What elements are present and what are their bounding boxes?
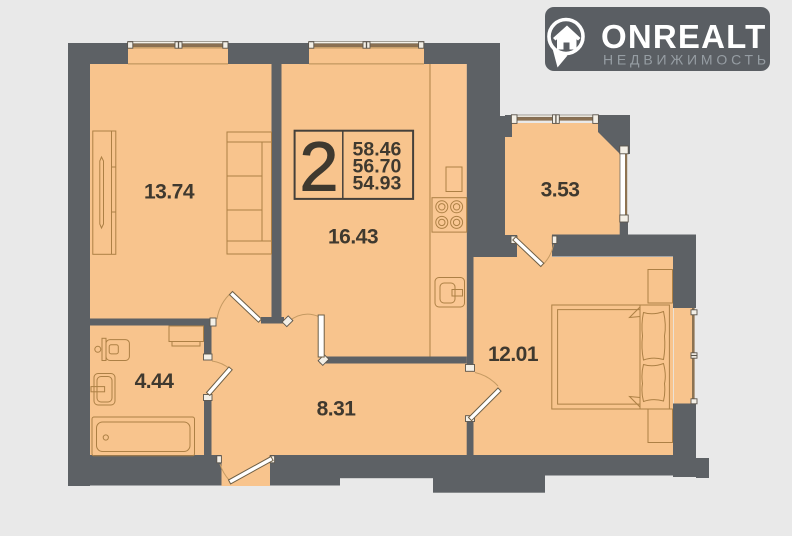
svg-text:8.31: 8.31 (317, 398, 357, 421)
svg-text:3.53: 3.53 (541, 179, 580, 202)
svg-text:2: 2 (300, 128, 339, 206)
svg-text:4.44: 4.44 (135, 370, 175, 393)
svg-text:ONREALT: ONREALT (601, 18, 766, 55)
svg-text:12.01: 12.01 (488, 343, 539, 366)
svg-text:16.43: 16.43 (328, 226, 378, 249)
svg-text:13.74: 13.74 (144, 181, 195, 204)
svg-text:54.93: 54.93 (353, 173, 402, 195)
svg-text:НЕДВИЖИМОСТЬ: НЕДВИЖИМОСТЬ (603, 52, 770, 68)
